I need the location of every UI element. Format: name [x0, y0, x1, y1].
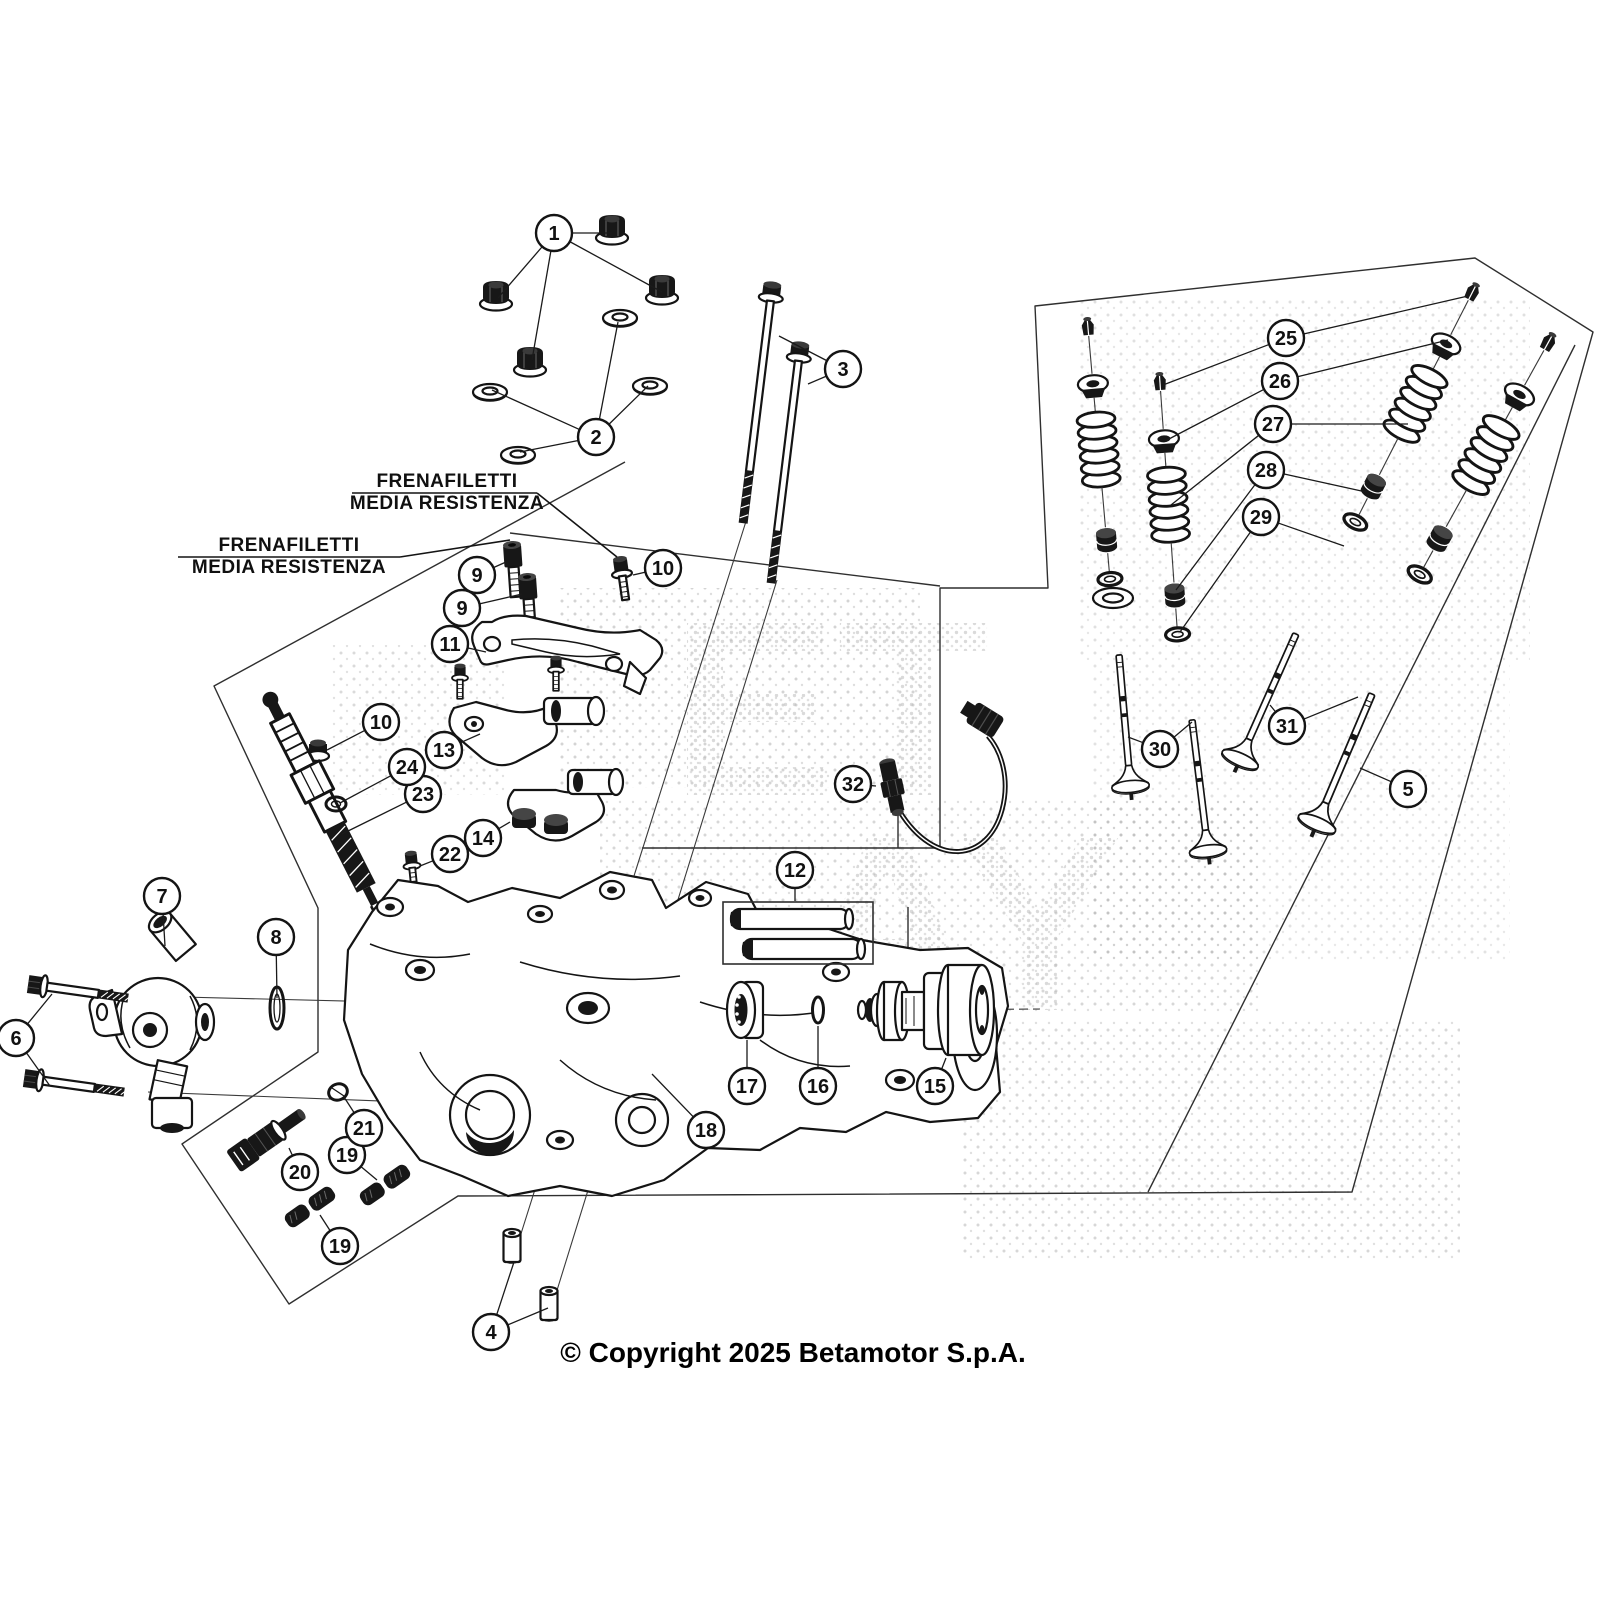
callout-2: 2 [578, 419, 614, 455]
callout-number: 1 [548, 223, 559, 245]
callout-number: 11 [439, 634, 460, 656]
callout-8: 8 [258, 919, 294, 955]
callout-5: 5 [1390, 771, 1426, 807]
callout-30: 30 [1142, 731, 1178, 767]
callout-leader-9 [493, 562, 506, 568]
callout-leader-1 [532, 251, 551, 360]
washer [603, 310, 637, 327]
callout-leader-2 [609, 386, 648, 424]
callout-number: 24 [396, 757, 419, 779]
stud [282, 1184, 337, 1229]
callout-number: 28 [1255, 460, 1277, 482]
callout-9: 9 [444, 590, 480, 626]
callout-number: 2 [590, 427, 601, 449]
callout-leader-19 [320, 1215, 330, 1231]
callout-number: 4 [485, 1322, 497, 1344]
callout-15: 15 [917, 1068, 953, 1104]
callout-13: 13 [426, 732, 462, 768]
callout-27: 27 [1255, 406, 1291, 442]
callout-number: 13 [433, 740, 455, 762]
callout-leader-1 [570, 242, 662, 292]
callout-25: 25 [1268, 320, 1304, 356]
frenafiletti-note-2-line-1: FRENAFILETTI [218, 535, 359, 556]
thermostat-housing [90, 907, 214, 1133]
callout-number: 22 [439, 844, 461, 866]
callout-number: 26 [1269, 371, 1291, 393]
valve-shim-washer [1093, 588, 1133, 608]
callout-leader-14 [498, 822, 510, 829]
callout-leader-19 [361, 1167, 377, 1180]
callout-number: 29 [1250, 507, 1272, 529]
exploded-parts-diagram: ETAY [0, 0, 1600, 1600]
callout-leader-9 [480, 594, 522, 604]
callout-20: 20 [282, 1154, 318, 1190]
callout-number: 20 [289, 1162, 311, 1184]
callout-leader-2 [492, 390, 580, 430]
callout-leader-1 [498, 247, 542, 298]
washer [473, 384, 507, 401]
frenafiletti-note-1-line-2: MEDIA RESISTENZA [350, 493, 544, 514]
callout-leader-2 [599, 322, 618, 419]
frenafiletti-note-1-line-1: FRENAFILETTI [376, 471, 517, 492]
flange-nut [596, 215, 628, 245]
callout-leader-23 [342, 802, 407, 834]
callout-number: 17 [736, 1076, 758, 1098]
callout-number: 10 [652, 558, 674, 580]
callout-29: 29 [1243, 499, 1279, 535]
copyright-text: © Copyright 2025 Betamotor S.p.A. [560, 1337, 1026, 1368]
callout-12: 12 [777, 852, 813, 888]
callout-number: 18 [695, 1120, 717, 1142]
callout-number: 23 [412, 784, 434, 806]
callout-leader-4 [497, 1262, 514, 1315]
callout-32: 32 [835, 766, 871, 802]
callout-31: 31 [1269, 708, 1305, 744]
callout-leader-3 [808, 376, 826, 384]
callout-leader-10 [633, 572, 645, 575]
callout-number: 8 [270, 927, 281, 949]
washer [633, 378, 667, 395]
callout-number: 6 [10, 1028, 21, 1050]
callout-6: 6 [0, 1020, 34, 1056]
callout-leader-20 [289, 1148, 293, 1156]
callout-14: 14 [465, 820, 501, 856]
callout-number: 21 [353, 1118, 375, 1140]
dowel [504, 1229, 521, 1263]
callout-7: 7 [144, 878, 180, 914]
flange-nut [646, 275, 678, 305]
callout-number: 25 [1275, 328, 1297, 350]
callout-number: 19 [329, 1236, 351, 1258]
flange-nut [480, 281, 512, 311]
note-leader-1 [537, 493, 617, 557]
callout-18: 18 [688, 1112, 724, 1148]
callout-11: 11 [432, 626, 468, 662]
callout-number: 31 [1276, 716, 1298, 738]
callout-number: 14 [472, 828, 495, 850]
callout-number: 15 [924, 1076, 946, 1098]
callout-leader-2 [520, 440, 578, 452]
callout-4: 4 [473, 1314, 509, 1350]
frenafiletti-note-2-line-2: MEDIA RESISTENZA [192, 557, 386, 578]
callout-number: 3 [837, 359, 848, 381]
callout-leader-22 [420, 861, 433, 866]
callout-number: 16 [807, 1076, 829, 1098]
callout-number: 9 [456, 598, 467, 620]
stud [357, 1162, 412, 1207]
callout-19: 19 [322, 1228, 358, 1264]
head-bolt-long [759, 340, 812, 585]
callout-28: 28 [1248, 452, 1284, 488]
callout-17: 17 [729, 1068, 765, 1104]
callout-number: 27 [1262, 414, 1284, 436]
callout-leader-6 [27, 994, 52, 1024]
callout-22: 22 [432, 836, 468, 872]
callout-26: 26 [1262, 363, 1298, 399]
callout-10: 10 [645, 550, 681, 586]
head-bolt-long [731, 280, 784, 525]
snap-ring [813, 997, 824, 1023]
callout-10: 10 [363, 704, 399, 740]
flange-nut [514, 347, 546, 377]
callout-number: 9 [471, 565, 482, 587]
callout-number: 7 [156, 886, 167, 908]
callout-21: 21 [346, 1110, 382, 1146]
callout-number: 12 [784, 860, 806, 882]
callout-24: 24 [389, 749, 425, 785]
parts-diagram-page: ETAY [0, 0, 1600, 1600]
callout-1: 1 [536, 215, 572, 251]
callout-9: 9 [459, 557, 495, 593]
bearing [727, 982, 763, 1038]
callout-number: 30 [1149, 739, 1171, 761]
callout-leader-8 [276, 955, 277, 998]
callout-3: 3 [825, 351, 861, 387]
callout-16: 16 [800, 1068, 836, 1104]
callout-number: 10 [370, 712, 392, 734]
callout-number: 32 [842, 774, 864, 796]
dowel [541, 1287, 558, 1321]
hex-bolt [23, 1067, 129, 1103]
callout-number: 19 [336, 1145, 358, 1167]
callout-number: 5 [1402, 779, 1413, 801]
